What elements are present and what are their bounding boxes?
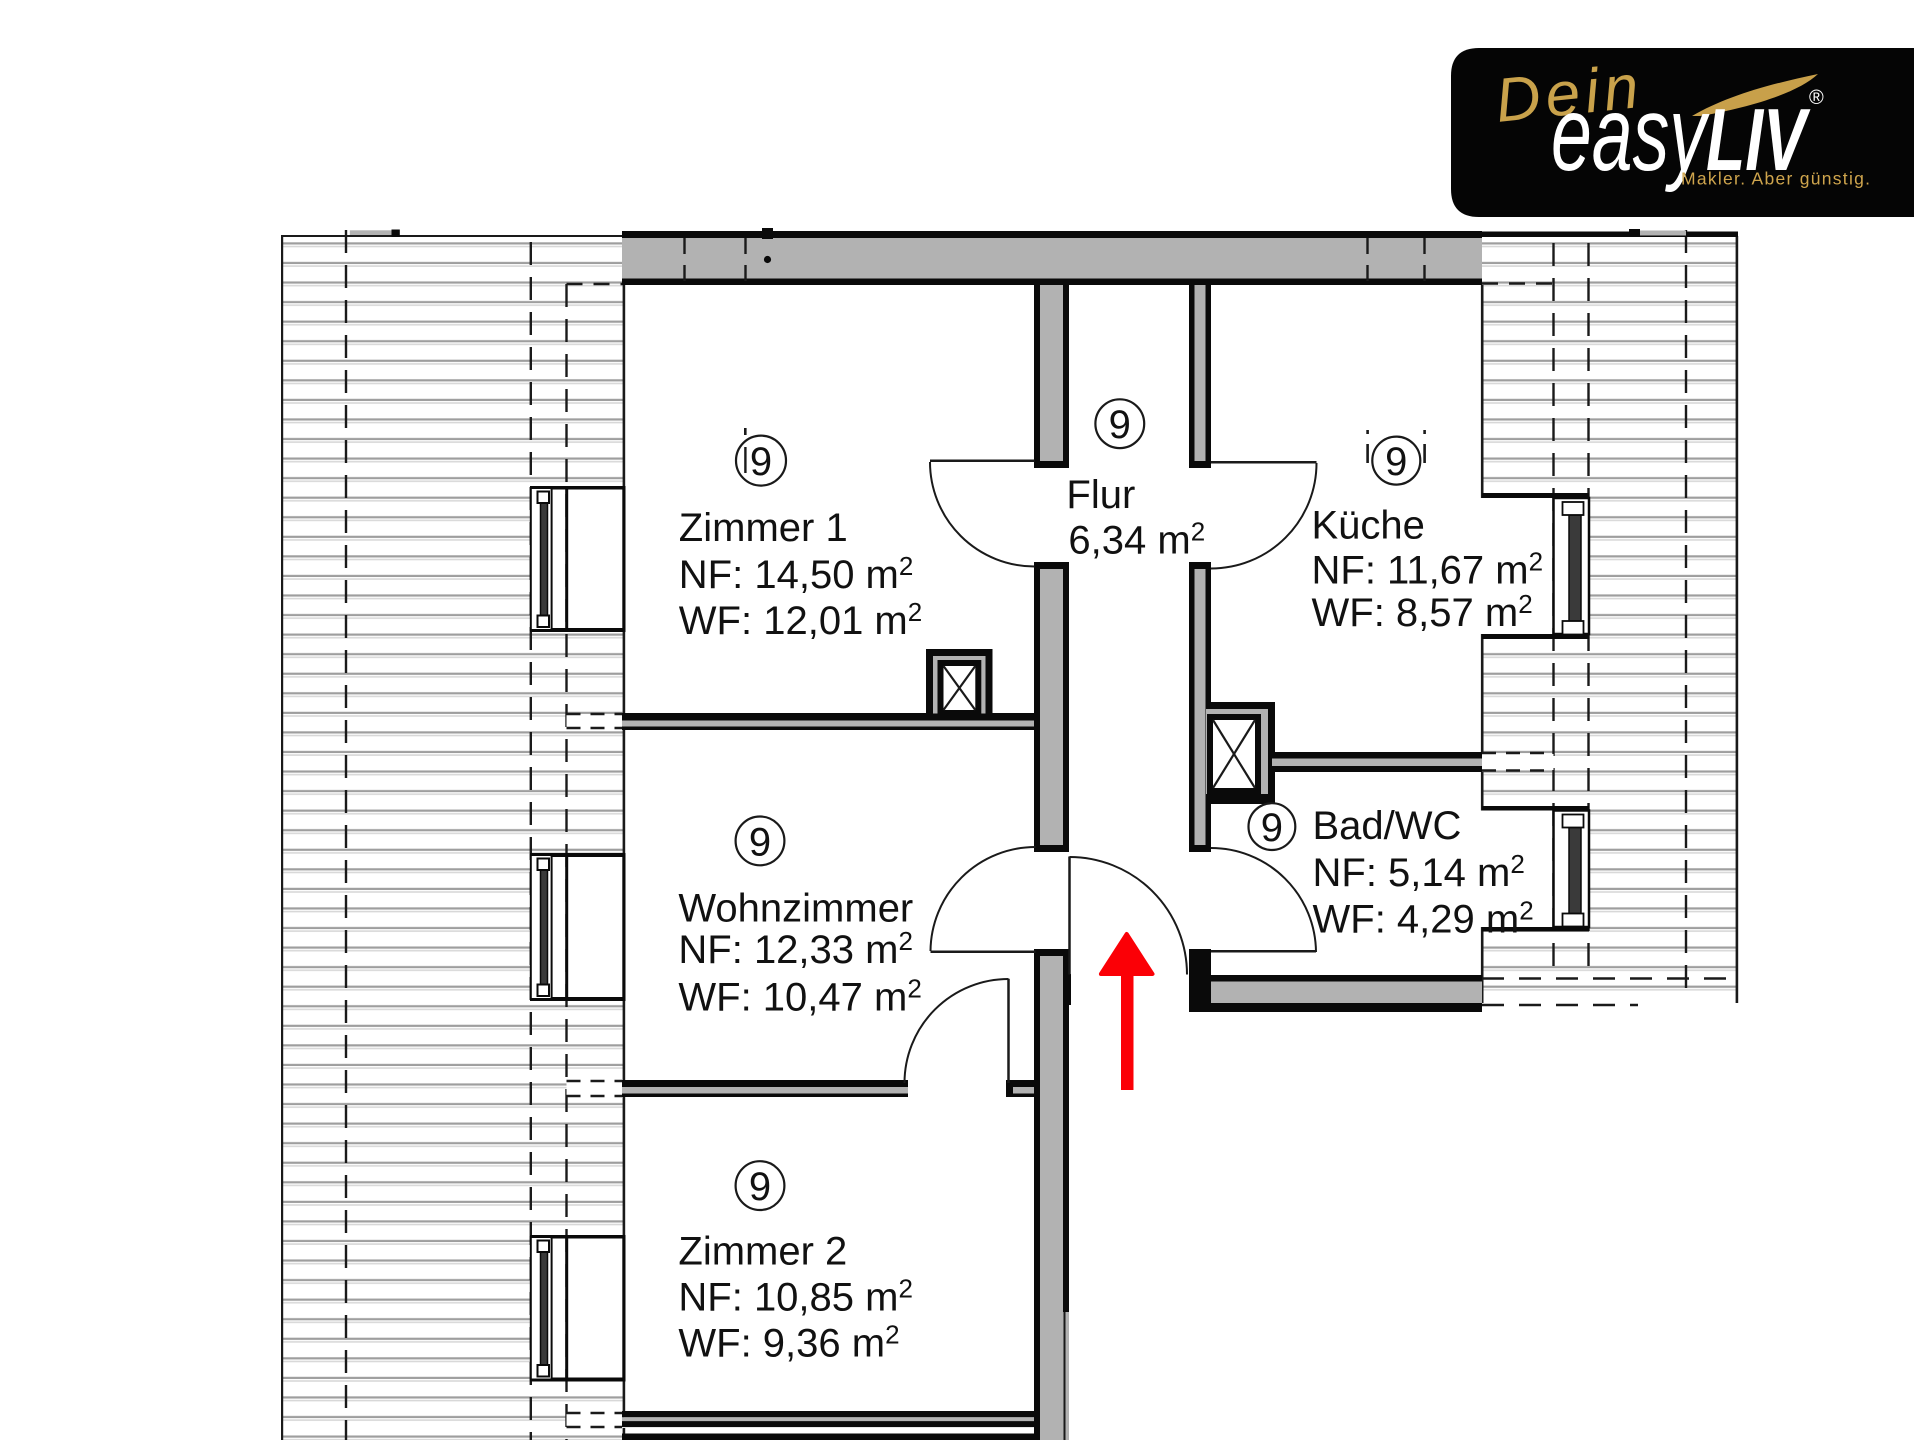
svg-text:Wohnzimmer: Wohnzimmer xyxy=(678,887,913,931)
svg-text:NF: 12,33 m2: NF: 12,33 m2 xyxy=(678,926,913,972)
svg-text:NF: 14,50 m2: NF: 14,50 m2 xyxy=(679,551,914,597)
svg-text:NF: 10,85 m2: NF: 10,85 m2 xyxy=(678,1273,913,1319)
svg-text:®: ® xyxy=(1809,87,1824,109)
svg-text:9: 9 xyxy=(749,1165,771,1209)
svg-text:WF: 8,57 m2: WF: 8,57 m2 xyxy=(1312,589,1533,635)
svg-text:9: 9 xyxy=(1261,806,1283,850)
svg-text:NF: 11,67 m2: NF: 11,67 m2 xyxy=(1312,546,1544,592)
svg-text:Bad/WC: Bad/WC xyxy=(1313,804,1462,848)
svg-text:Flur: Flur xyxy=(1066,473,1135,517)
svg-text:WF: 4,29 m2: WF: 4,29 m2 xyxy=(1313,896,1534,942)
svg-text:9: 9 xyxy=(749,820,771,864)
svg-text:NF: 5,14 m2: NF: 5,14 m2 xyxy=(1313,849,1525,895)
svg-text:Zimmer 2: Zimmer 2 xyxy=(678,1229,847,1273)
svg-text:9: 9 xyxy=(1385,440,1407,484)
svg-text:9: 9 xyxy=(750,440,772,484)
svg-text:6,34 m2: 6,34 m2 xyxy=(1068,517,1205,563)
svg-text:9: 9 xyxy=(1109,403,1131,447)
svg-text:WF: 10,47 m2: WF: 10,47 m2 xyxy=(678,974,921,1020)
svg-text:Zimmer 1: Zimmer 1 xyxy=(679,506,848,550)
svg-text:Küche: Küche xyxy=(1312,503,1425,547)
svg-text:WF: 9,36 m2: WF: 9,36 m2 xyxy=(678,1319,899,1365)
svg-text:WF: 12,01 m2: WF: 12,01 m2 xyxy=(679,597,922,643)
